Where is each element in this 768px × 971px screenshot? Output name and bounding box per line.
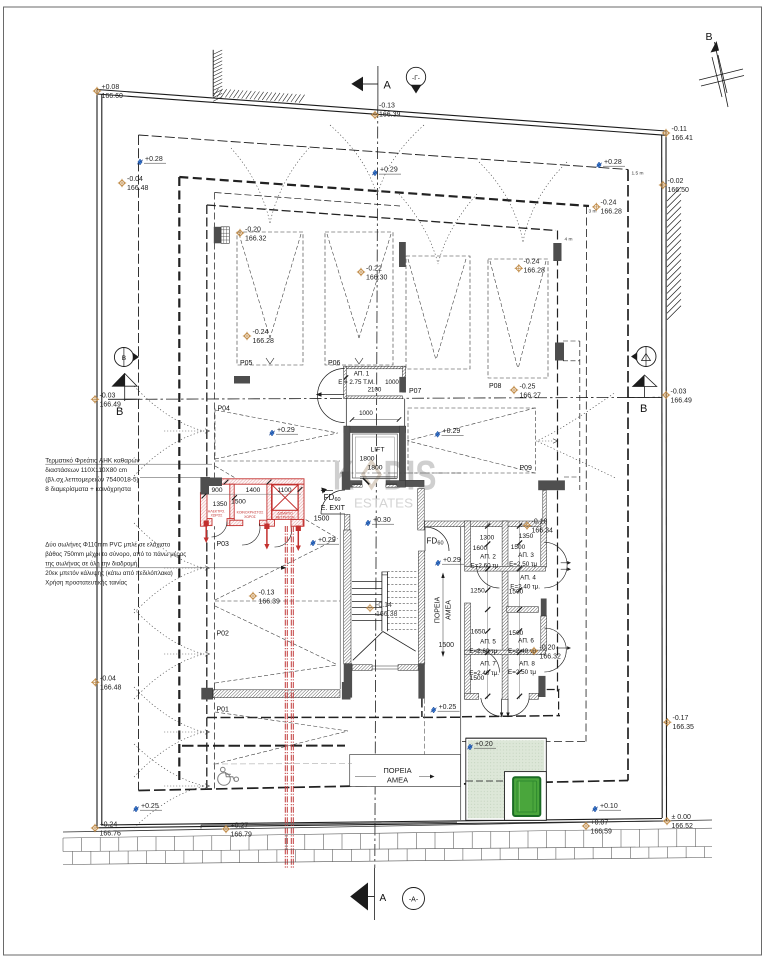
svg-text:-0.04: -0.04 [100,676,116,683]
svg-text:-0.03: -0.03 [671,389,687,396]
svg-text:Τερματικό Φρεάτιο ΑΗΚ καθαρών: Τερματικό Φρεάτιο ΑΗΚ καθαρών [45,456,139,464]
svg-text:-0.24: -0.24 [601,200,617,207]
svg-text:166.41: 166.41 [672,135,694,142]
svg-text:166.39: 166.39 [379,112,401,119]
svg-text:B: B [122,355,126,362]
svg-text:ΑΠ. 8: ΑΠ. 8 [519,661,535,668]
svg-text:P06: P06 [328,360,341,367]
svg-text:ΚΟΙΝΟΧΡΗΣΤΟΣ: ΚΟΙΝΟΧΡΗΣΤΟΣ [237,511,264,515]
svg-text:166.52: 166.52 [672,823,694,830]
svg-text:166.60: 166.60 [102,93,124,100]
svg-text:ΑΜΕΑ: ΑΜΕΑ [387,776,408,785]
svg-text:-0.13: -0.13 [379,103,395,110]
svg-text:P01: P01 [217,707,230,714]
svg-text:-0.14: -0.14 [376,602,392,609]
svg-text:Δύο σωλήνες Φ110mm PVC μπλέ σε: Δύο σωλήνες Φ110mm PVC μπλέ σε ελάχιστο [45,542,171,549]
svg-text:-0.18: -0.18 [532,519,548,526]
svg-text:+0.27: +0.27 [231,823,249,830]
svg-text:(βλ.σχ.λεπτομερειών 7540018-5): (βλ.σχ.λεπτομερειών 7540018-5) [45,475,138,483]
svg-text:166.38: 166.38 [376,611,398,618]
svg-text:E=2.50 τμ: E=2.50 τμ [509,561,537,568]
svg-text:P05: P05 [240,360,253,367]
svg-text:-0.24: -0.24 [253,329,269,336]
svg-text:-0.11: -0.11 [672,126,688,133]
svg-text:1600: 1600 [473,545,488,552]
svg-text:166.79: 166.79 [231,832,253,839]
svg-text:B: B [706,31,713,43]
svg-text:166.34: 166.34 [532,528,554,535]
svg-text:E. EXIT: E. EXIT [321,505,346,512]
svg-text:1300: 1300 [480,535,495,542]
svg-text:ΑΜΕΑ: ΑΜΕΑ [446,600,453,620]
svg-text:166.48: 166.48 [127,185,149,192]
svg-text:-0.17: -0.17 [673,715,689,722]
svg-text:1500: 1500 [511,544,526,551]
svg-text:FD: FD [324,493,335,502]
svg-text:166.28: 166.28 [253,338,275,345]
svg-text:1000: 1000 [385,379,399,386]
svg-text:166.39: 166.39 [259,599,281,606]
svg-text:1500: 1500 [231,499,246,506]
svg-text:ΑΠ. 4: ΑΠ. 4 [520,575,536,582]
svg-text:1800: 1800 [359,456,374,463]
svg-text:166.50: 166.50 [668,187,690,194]
svg-text:+0.28: +0.28 [145,156,163,163]
svg-text:ΠΟΡΕΙΑ: ΠΟΡΕΙΑ [383,766,411,775]
svg-text:E=2.50 τμ: E=2.50 τμ [508,669,536,676]
svg-text:2100: 2100 [368,387,382,394]
svg-text:βάθος 750mm μέχρι το σύνορο, α: βάθος 750mm μέχρι το σύνορο, από το πάνω… [45,551,186,558]
svg-text:1400: 1400 [246,487,261,494]
svg-text:-0.25: -0.25 [520,384,536,391]
svg-text:-0.24: -0.24 [524,259,540,266]
svg-text:166.28: 166.28 [524,268,546,275]
svg-text:DIS: DIS [384,452,437,499]
svg-text:B: B [640,403,647,415]
svg-text:ΑΠ. 3: ΑΠ. 3 [518,552,534,559]
svg-text:-0.20: -0.20 [245,227,261,234]
svg-text:Χρήση προστατευτικής ταινίας: Χρήση προστατευτικής ταινίας [45,580,127,587]
svg-text:A: A [380,893,387,904]
svg-text:FD: FD [427,537,438,546]
svg-text:+0.25: +0.25 [439,704,457,711]
svg-text:ESTATES: ESTATES [354,496,413,511]
svg-text:-0.13: -0.13 [259,590,275,597]
svg-text:P03: P03 [217,541,230,548]
svg-text:4 m: 4 m [565,237,573,243]
svg-text:1500: 1500 [470,675,485,682]
svg-text:-0.04: -0.04 [127,176,143,183]
svg-text:ΑΠ. 6: ΑΠ. 6 [518,638,534,645]
svg-text:± 0.00: ± 0.00 [672,814,692,821]
svg-text:της σωλήνας σε όλη την διαδρομ: της σωλήνας σε όλη την διαδρομή. [45,561,139,568]
svg-text:ΜΕΤΡΗΤΩΝ: ΜΕΤΡΗΤΩΝ [276,516,295,520]
svg-text:+0.30: +0.30 [373,517,391,524]
svg-text:A: A [384,80,392,92]
svg-text:60: 60 [335,497,341,503]
svg-text:1500: 1500 [439,642,455,649]
svg-text:ΑΠ. 5: ΑΠ. 5 [480,639,496,646]
svg-text:ΧΩΡΟΣ: ΧΩΡΟΣ [244,515,256,519]
svg-text:1800: 1800 [367,465,382,472]
svg-text:ΠΟΡΕΙΑ: ΠΟΡΕΙΑ [435,596,442,623]
svg-text:900: 900 [211,487,222,494]
svg-text:166.32: 166.32 [540,654,562,661]
svg-text:E=2.60 τμ: E=2.60 τμ [469,648,497,655]
svg-text:P08: P08 [489,383,502,390]
svg-text:+0.25: +0.25 [141,803,159,810]
svg-text:60: 60 [437,541,443,547]
svg-text:8 διαμερίσματα + κοινόχρηστα: 8 διαμερίσματα + κοινόχρηστα [45,485,131,493]
svg-text:διαστάσεων 110X110X80 cm: διαστάσεων 110X110X80 cm [45,466,127,474]
svg-text:ΑΠ. 1: ΑΠ. 1 [354,371,370,378]
svg-text:1500: 1500 [314,516,330,523]
svg-text:1500: 1500 [509,630,524,637]
svg-text:1100: 1100 [277,487,292,494]
svg-text:ΑΠ. 7: ΑΠ. 7 [480,661,496,668]
svg-text:166.28: 166.28 [601,209,623,216]
svg-text:ΑΠ. 2: ΑΠ. 2 [480,554,496,561]
svg-text:+0.20: +0.20 [475,741,493,748]
svg-text:-0.03: -0.03 [100,393,116,400]
svg-text:1350: 1350 [213,501,228,508]
svg-text:-A-: -A- [409,897,419,904]
svg-text:+0.29: +0.29 [277,427,295,434]
svg-text:-0.20: -0.20 [540,645,556,652]
svg-text:P09: P09 [520,465,533,472]
svg-text:20εκ μπετόν κάλυψης (κάτω από: 20εκ μπετόν κάλυψης (κάτω από πεδιλόπλακ… [45,570,173,577]
svg-text:-0.02: -0.02 [668,178,684,185]
svg-text:1650: 1650 [471,629,486,636]
svg-text:+0.10: +0.10 [600,803,618,810]
svg-text:+0.28: +0.28 [604,159,622,166]
svg-text:166.32: 166.32 [245,236,267,243]
svg-text:166.27: 166.27 [520,393,542,400]
svg-text:+0.29: +0.29 [380,167,398,174]
svg-text:+0.29: +0.29 [318,537,336,544]
svg-text:166.30: 166.30 [366,275,388,282]
svg-text:166.49: 166.49 [100,402,122,409]
svg-text:+0.24: +0.24 [100,822,118,829]
svg-text:+0.29: +0.29 [443,557,461,564]
svg-text:+0.08: +0.08 [102,84,120,91]
svg-text:-Γ-: -Γ- [412,75,420,82]
svg-text:+0.29: +0.29 [443,428,461,435]
svg-text:1000: 1000 [359,410,373,417]
svg-text:166.49: 166.49 [671,398,693,405]
svg-text:166.59: 166.59 [591,829,613,836]
svg-text:LIFT: LIFT [371,447,385,454]
svg-text:166.35: 166.35 [673,724,695,731]
svg-text:1.5 m: 1.5 m [632,171,644,177]
svg-text:P02: P02 [217,631,230,638]
svg-text:P07: P07 [409,388,422,395]
svg-text:ΧΩΡΟΣ: ΧΩΡΟΣ [211,514,223,518]
svg-text:166.48: 166.48 [100,685,122,692]
svg-text:P04: P04 [218,406,231,413]
svg-text:166.76: 166.76 [100,831,122,838]
svg-text:1250: 1250 [470,588,485,595]
svg-text:E = 2.75 Τ.Μ.: E = 2.75 Τ.Μ. [338,379,375,386]
svg-text:+0.07: +0.07 [591,820,609,827]
svg-text:1500: 1500 [509,589,524,596]
svg-text:-0.22: -0.22 [366,266,382,273]
svg-text:E=2.60 τμ: E=2.60 τμ [471,563,499,570]
